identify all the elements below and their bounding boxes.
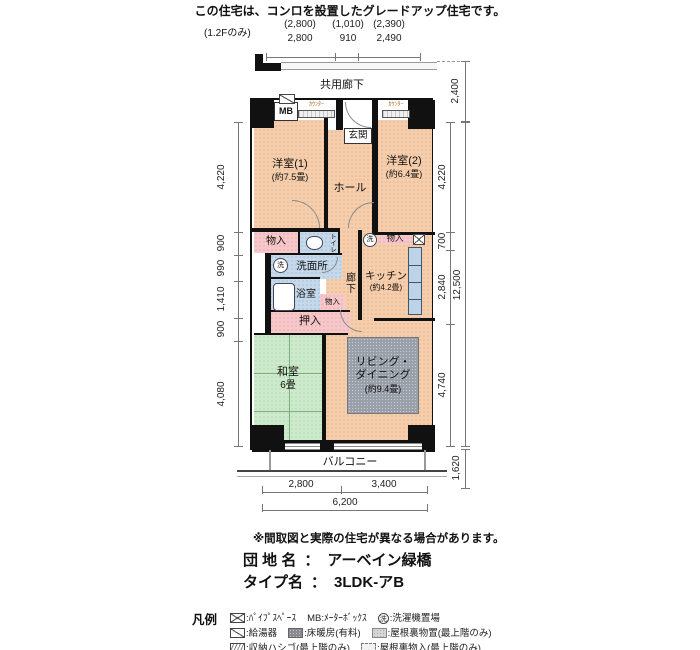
washer-place-icon: 洗 [363,233,377,247]
water-heater-icon [279,94,295,104]
living-size: (約9.4畳) [347,384,419,394]
legend-row-2: :給湯器 :床暖房(有料) :屋根裏物置(最上階のみ) [230,625,492,639]
dim-top-3: 2,490 [344,33,434,44]
bathroom-label: 浴室 [292,289,320,301]
dim-right-balcony: 1,620 [451,448,463,488]
balcony-railing [237,470,447,472]
dim-top-3-paren: (2,390) [344,19,434,30]
legend-item: :屋根裏物置(最上階のみ) [372,625,492,639]
pipe-space-icon [230,613,245,623]
type-label: タイプ名 [243,574,303,591]
corridor-inner-label: 廊下 [343,272,355,304]
page-title: この住宅は、コンロを設置したグレードアップ住宅です。 [0,2,700,19]
counter-left [298,110,335,118]
water-heater-icon [230,628,245,638]
balcony-label: バルコニー [300,453,400,469]
window-living [334,443,422,450]
pipe-space-icon [413,234,425,245]
dim-bottom-total: 6,200 [310,497,380,508]
type-name: 3LDK-アB [334,574,404,591]
washroom-label: 洗面所 [286,260,338,272]
estate-label: 団 地 名 [243,552,296,569]
dim-right-3: 2,840 [437,267,449,307]
attic-closet-icon [361,643,376,650]
yoshitsu1-size: (約7.5畳) [254,172,326,182]
toilet-label: トイレ [328,233,335,255]
dim-bottom-1: 2,800 [266,479,336,490]
dim-right-corridor: 2,400 [450,71,462,111]
kitchen-name: キッチン [360,270,412,282]
estate-name-row: 団 地 名：アーベイン緑橋 [243,549,431,570]
attic-storage-icon [372,628,387,638]
dim-left-1: 4,220 [216,157,228,197]
yoshitsu2-size: (約6.4畳) [376,169,432,179]
counter-right [382,110,410,118]
dim-line-top [266,57,420,58]
legend-row-3: :収納ハシゴ(最上階のみ) :屋根裏物入(最上階のみ) [230,640,481,650]
estate-name: アーベイン緑橋 [327,552,431,569]
window-washitsu [285,443,320,450]
legend-item: 洗:洗濯機置場 [378,610,440,624]
floor-only-note: (1.2Fのみ) [204,24,251,39]
meter-box: MB [274,102,298,121]
dim-left-6: 4,080 [216,374,228,414]
legend-title: 凡例 [192,609,217,628]
legend-item: :ﾊﾟｲﾌﾟｽﾍﾟｰｽ [230,610,296,624]
storage-ladder-icon [230,643,245,650]
storage-right-label: 物入 [378,234,412,244]
common-corridor-label: 共用廊下 [302,76,382,92]
disclaimer: ※間取図と実際の住宅が異なる場合があります。 [253,530,505,546]
toilet-icon [306,236,323,250]
yoshitsu2-name: 洋室(2) [376,155,432,168]
genkan-label: 玄関 [344,128,372,144]
floor-heating-icon [288,628,303,638]
dim-right-2: 700 [437,221,449,261]
common-corridor-strip [281,62,437,70]
counter-right-label: ｶｳﾝﾀｰ [378,102,414,109]
floorplan-page: この住宅は、コンロを設置したグレードアップ住宅です。 (1.2Fのみ) (2,8… [0,0,700,650]
oshiire-label: 押入 [280,315,340,328]
legend-item: :床暖房(有料) [288,625,360,639]
hall-label: ホール [326,182,374,195]
legend-item: :収納ハシゴ(最上階のみ) [230,640,350,650]
counter-left-label: ｶｳﾝﾀｰ [296,102,337,109]
pillar-top-left [252,100,274,128]
kitchen-size: (約4.2畳) [358,283,414,292]
legend-item: :屋根裏物入(最上階のみ) [361,640,481,650]
dim-right-4: 4,740 [437,365,449,405]
living-name: リビング・ ダイニング [347,356,419,381]
legend-item: MB:ﾒｰﾀｰﾎﾞｯｸｽ [307,610,367,624]
floorplan: MB ｶｳﾝﾀｰ ｶｳﾝﾀｰ 玄関 洗 洗 洋室(1) (約7.5畳) 洋室(2… [250,98,433,450]
estate-colon: ： [296,552,327,569]
legend-item: :給湯器 [230,625,277,639]
type-colon: ： [303,574,334,591]
dim-left-5: 900 [216,309,228,349]
washitsu-size: 6畳 [268,380,308,392]
yoshitsu1-name: 洋室(1) [254,158,326,171]
storage-left-label: 物入 [254,236,298,248]
entrance-door-arc [345,102,371,128]
washitsu-name: 和室 [268,366,308,379]
dim-right-total: 12,500 [452,265,464,305]
dim-bottom-2: 3,400 [349,479,419,490]
legend-row-1: :ﾊﾟｲﾌﾟｽﾍﾟｰｽ MB:ﾒｰﾀｰﾎﾞｯｸｽ 洗:洗濯機置場 [230,610,440,624]
dim-right-1: 4,220 [437,157,449,197]
type-name-row: タイプ名：3LDK-アB [243,571,404,592]
washer-icon: 洗 [378,613,389,624]
storage-mid-label: 物入 [320,298,345,307]
